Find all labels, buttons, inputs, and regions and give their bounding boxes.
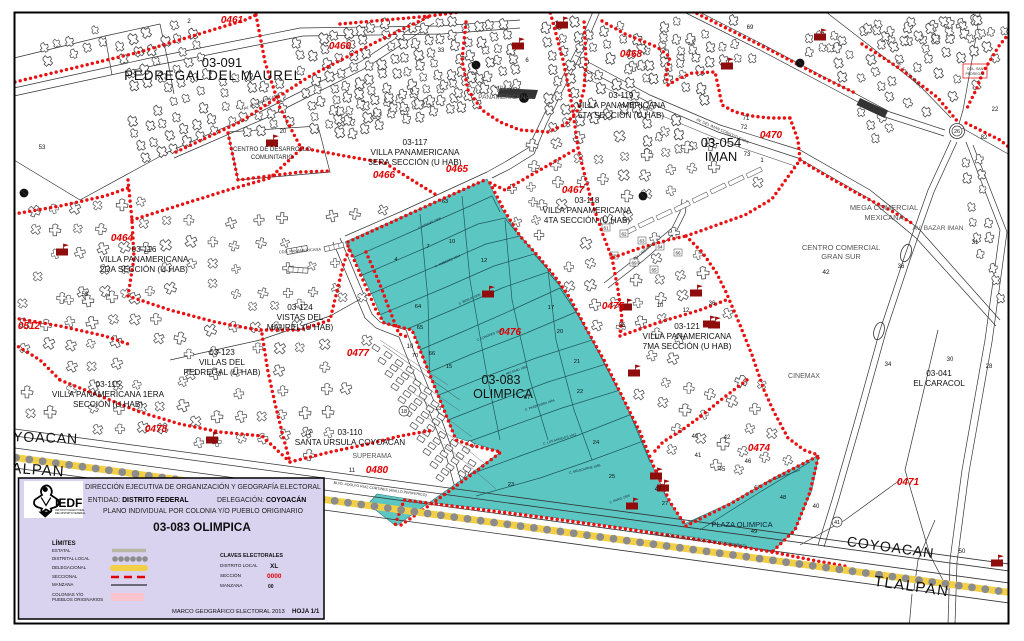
svg-text:10: 10	[449, 239, 455, 245]
svg-text:VILLA PANAMERICANA: VILLA PANAMERICANA	[642, 332, 732, 341]
svg-text:46: 46	[745, 459, 752, 465]
svg-text:0512: 0512	[18, 321, 41, 332]
svg-text:03-115: 03-115	[96, 380, 121, 389]
svg-text:CENTRO DE DESARROLLO: CENTRO DE DESARROLLO	[233, 147, 311, 153]
svg-text:65: 65	[651, 268, 657, 273]
svg-text:SANTA URSULA COYOACAN: SANTA URSULA COYOACAN	[295, 438, 405, 447]
svg-text:25: 25	[609, 474, 615, 480]
svg-text:33: 33	[438, 48, 445, 54]
svg-text:30: 30	[947, 357, 954, 363]
svg-text:PANAMERICANA: PANAMERICANA	[478, 94, 530, 101]
svg-text:VILLA PANAMERICANA: VILLA PANAMERICANA	[542, 206, 632, 215]
svg-text:0478: 0478	[145, 424, 168, 435]
svg-text:CINEMAX: CINEMAX	[788, 373, 820, 380]
svg-text:72: 72	[741, 125, 748, 131]
svg-text:36: 36	[898, 264, 905, 270]
svg-text:MARCO GEOGRÁFICO ELECTORAL 20: MARCO GEOGRÁFICO ELECTORAL 2013	[172, 608, 285, 615]
svg-text:PEDREGAL: PEDREGAL	[965, 72, 984, 76]
svg-text:00: 00	[268, 584, 274, 590]
svg-text:62: 62	[621, 232, 627, 237]
svg-text:CLAVES ELECTORALES: CLAVES ELECTORALES	[220, 553, 283, 559]
svg-text:2DA SECCIÓN (U HAB): 2DA SECCIÓN (U HAB)	[100, 264, 188, 274]
svg-text:COL. SAN: COL. SAN	[967, 67, 984, 71]
svg-text:69: 69	[747, 25, 754, 31]
svg-text:MANZANA: MANZANA	[220, 583, 243, 588]
svg-text:0000: 0000	[267, 573, 282, 580]
svg-text:DIRECCIÓN EJECUTIVA DE ORGANIZ: DIRECCIÓN EJECUTIVA DE ORGANIZACIÓN Y GE…	[85, 482, 321, 491]
svg-text:SECCIONAL: SECCIONAL	[52, 574, 78, 579]
svg-text:26: 26	[954, 129, 960, 135]
svg-text:03-041: 03-041	[926, 369, 952, 378]
svg-text:DELEGACIÓN: COYOACÁN: DELEGACIÓN: COYOACÁN	[217, 495, 306, 504]
svg-text:69: 69	[631, 261, 637, 266]
svg-text:34: 34	[885, 362, 892, 368]
svg-text:70: 70	[412, 353, 418, 359]
svg-text:64: 64	[415, 304, 422, 310]
svg-text:71: 71	[743, 116, 750, 122]
svg-text:SECCIÓN (U HAB): SECCIÓN (U HAB)	[73, 399, 143, 409]
svg-text:PLANO INDIVIDUAL POR COLONIA Y: PLANO INDIVIDUAL POR COLONIA Y/O PUEBLO …	[103, 508, 304, 515]
svg-text:49: 49	[751, 529, 757, 535]
svg-text:53: 53	[39, 145, 46, 151]
svg-text:42: 42	[822, 269, 830, 276]
svg-text:7MA SECCIÓN (U HAB): 7MA SECCIÓN (U HAB)	[643, 341, 732, 351]
svg-text:DISTRITAL LOCAL: DISTRITAL LOCAL	[52, 556, 90, 561]
svg-text:18: 18	[401, 409, 407, 415]
svg-text:DELEGACIONAL: DELEGACIONAL	[52, 565, 87, 570]
svg-text:MAUREL (U HAB): MAUREL (U HAB)	[267, 323, 334, 332]
svg-text:35: 35	[619, 323, 626, 329]
svg-text:IEDF: IEDF	[55, 496, 82, 510]
svg-text:AV. BAZAR IMAN: AV. BAZAR IMAN	[913, 225, 964, 232]
svg-text:03-118: 03-118	[575, 196, 600, 205]
svg-text:0470: 0470	[760, 130, 783, 141]
svg-text:40: 40	[692, 434, 699, 440]
svg-text:7: 7	[426, 244, 429, 250]
svg-text:82: 82	[981, 135, 988, 141]
svg-text:65: 65	[417, 325, 423, 331]
svg-text:MEXICANA: MEXICANA	[864, 213, 903, 222]
svg-text:03-119: 03-119	[609, 91, 634, 100]
svg-text:42: 42	[724, 435, 731, 441]
svg-text:23: 23	[508, 482, 514, 488]
svg-text:40: 40	[813, 504, 820, 510]
svg-text:ENTIDAD: DISTRITO FEDERAL: ENTIDAD: DISTRITO FEDERAL	[88, 497, 189, 504]
svg-text:03-083: 03-083	[482, 373, 521, 387]
svg-text:64: 64	[657, 245, 663, 250]
svg-text:15: 15	[446, 364, 452, 370]
svg-text:03-117: 03-117	[403, 138, 428, 147]
svg-text:0461: 0461	[221, 15, 244, 26]
svg-text:PLAZA OLIMPICA: PLAZA OLIMPICA	[711, 520, 772, 529]
svg-text:03-083 OLIMPICA: 03-083 OLIMPICA	[153, 520, 251, 534]
svg-text:PUEBLOS ORIGINARIOS: PUEBLOS ORIGINARIOS	[52, 597, 103, 602]
svg-text:0476: 0476	[499, 327, 522, 338]
svg-text:61: 61	[603, 226, 609, 231]
svg-text:GRAN SUR: GRAN SUR	[821, 252, 861, 261]
svg-text:EL CARACOL: EL CARACOL	[913, 379, 965, 388]
svg-text:45: 45	[719, 467, 726, 473]
svg-text:27: 27	[662, 501, 668, 507]
svg-text:MEGA COMERCIAL: MEGA COMERCIAL	[850, 203, 918, 212]
svg-text:22: 22	[577, 389, 583, 395]
svg-text:21: 21	[574, 359, 580, 365]
svg-text:12: 12	[683, 308, 690, 314]
svg-text:47: 47	[655, 487, 662, 493]
svg-text:70: 70	[627, 103, 634, 109]
svg-text:VISTAS DEL: VISTAS DEL	[277, 313, 324, 322]
svg-text:50: 50	[959, 549, 966, 555]
svg-text:66: 66	[429, 351, 435, 357]
svg-text:66: 66	[675, 251, 681, 256]
svg-text:0474: 0474	[748, 443, 771, 454]
svg-text:VILLA PANAMERICANA: VILLA PANAMERICANA	[370, 148, 460, 157]
svg-text:CENTRO COMERCIAL: CENTRO COMERCIAL	[802, 243, 880, 252]
svg-text:PEDREGAL DEL MAUREL: PEDREGAL DEL MAUREL	[124, 68, 302, 83]
svg-text:10: 10	[407, 344, 414, 350]
svg-text:20: 20	[280, 129, 287, 135]
svg-text:28: 28	[986, 364, 993, 370]
svg-text:63: 63	[639, 239, 645, 244]
svg-text:0467: 0467	[562, 185, 585, 196]
svg-text:03-116: 03-116	[132, 245, 157, 254]
svg-text:VILLA: VILLA	[495, 85, 513, 92]
svg-text:XL: XL	[270, 563, 278, 570]
svg-text:DEL DISTRITO FEDERAL: DEL DISTRITO FEDERAL	[55, 511, 86, 515]
svg-text:10: 10	[657, 303, 664, 309]
svg-text:03-110: 03-110	[338, 428, 363, 437]
svg-text:0471: 0471	[897, 477, 920, 488]
svg-text:ESTATAL: ESTATAL	[52, 548, 71, 553]
svg-text:COMUNITARIO: COMUNITARIO	[251, 155, 294, 161]
svg-text:SECCIÓN: SECCIÓN	[220, 572, 241, 578]
svg-text:17: 17	[548, 305, 554, 311]
svg-text:41: 41	[834, 520, 840, 526]
svg-text:OLIMPICA: OLIMPICA	[473, 387, 533, 401]
svg-text:SUPERAMA: SUPERAMA	[352, 453, 392, 460]
svg-text:36: 36	[709, 301, 716, 307]
svg-text:31: 31	[972, 240, 979, 246]
svg-text:53: 53	[82, 292, 89, 298]
svg-text:12: 12	[481, 258, 487, 264]
svg-text:20: 20	[557, 329, 563, 335]
svg-text:0475: 0475	[602, 301, 625, 312]
svg-text:VILLA PANAMERICANA 1ERA: VILLA PANAMERICANA 1ERA	[52, 390, 165, 399]
svg-text:VILLAS DEL: VILLAS DEL	[199, 358, 245, 367]
svg-text:12: 12	[305, 431, 312, 437]
svg-text:41: 41	[695, 453, 702, 459]
svg-text:4TA SECCIÓN (U HAB): 4TA SECCIÓN (U HAB)	[544, 215, 631, 225]
svg-text:VILLA PANAMERICANA: VILLA PANAMERICANA	[576, 101, 666, 110]
svg-text:VILLA PANAMERICANA: VILLA PANAMERICANA	[99, 255, 189, 264]
svg-text:5TA SECCIÓN (U HAB): 5TA SECCIÓN (U HAB)	[578, 110, 665, 120]
svg-text:HOJA 1/1: HOJA 1/1	[292, 608, 320, 615]
svg-text:0460: 0460	[329, 41, 352, 52]
svg-text:48: 48	[780, 495, 786, 501]
svg-text:0477: 0477	[347, 348, 370, 359]
svg-text:22: 22	[992, 107, 999, 113]
svg-text:73: 73	[744, 152, 751, 158]
svg-text:0468: 0468	[620, 49, 643, 60]
svg-text:LÍMITES: LÍMITES	[52, 539, 76, 547]
svg-text:IMAN: IMAN	[705, 149, 738, 164]
svg-text:PEDREGAL (U HAB): PEDREGAL (U HAB)	[183, 368, 260, 377]
svg-text:0464: 0464	[111, 233, 134, 244]
svg-text:11: 11	[349, 468, 356, 474]
svg-text:03-121: 03-121	[674, 322, 700, 331]
svg-text:0465: 0465	[446, 164, 469, 175]
svg-text:03-124: 03-124	[287, 303, 313, 312]
svg-text:63: 63	[442, 199, 448, 205]
svg-text:DISTRITO LOCAL: DISTRITO LOCAL	[220, 563, 258, 568]
svg-text:03-123: 03-123	[209, 348, 235, 357]
svg-text:MANZANA: MANZANA	[52, 582, 74, 587]
svg-text:0466: 0466	[373, 170, 396, 181]
svg-text:0480: 0480	[366, 465, 389, 476]
svg-text:24: 24	[593, 440, 600, 446]
